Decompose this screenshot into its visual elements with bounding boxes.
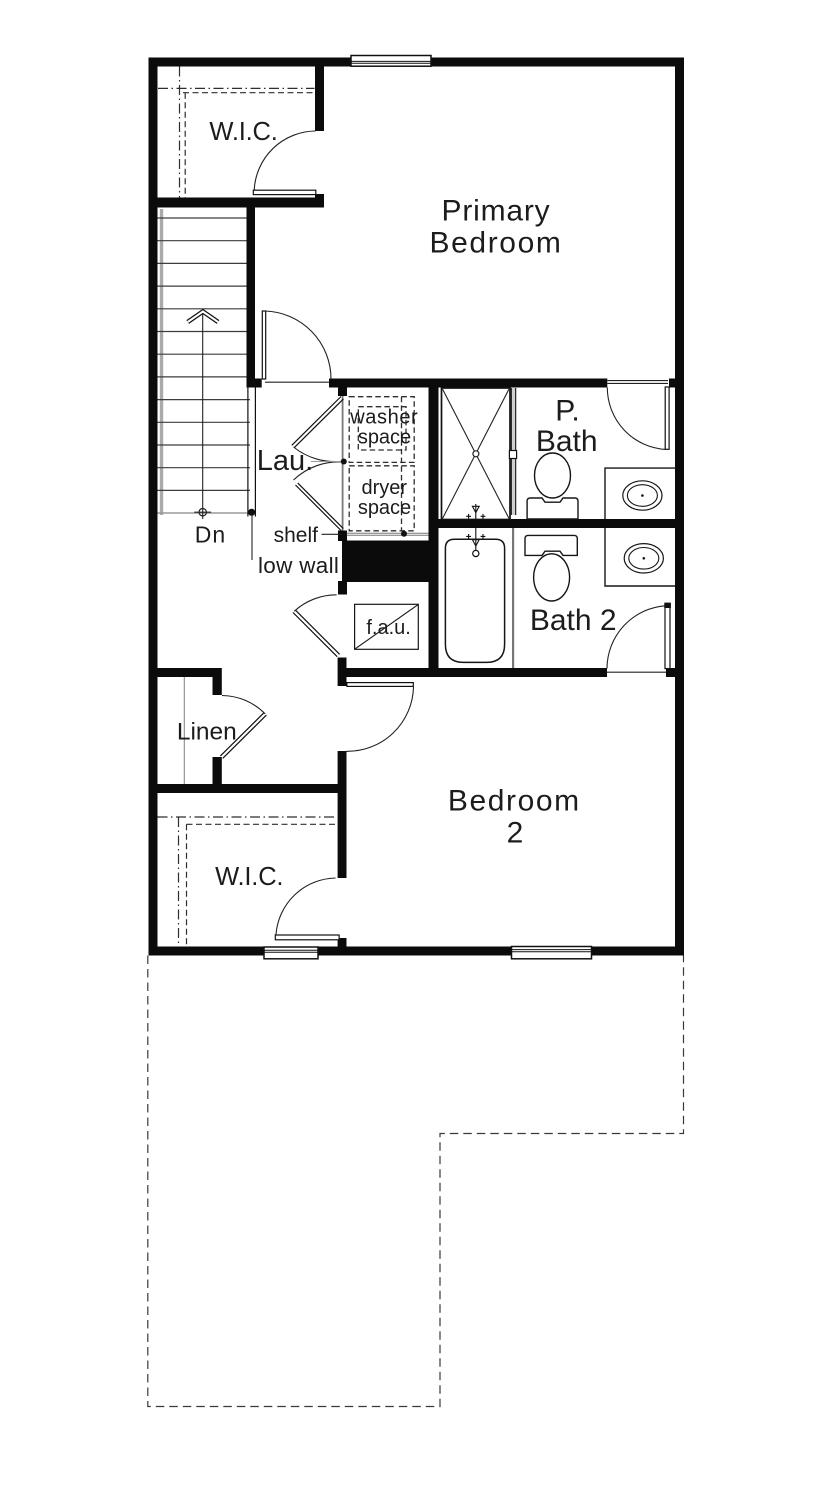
svg-text:Bath 2: Bath 2 — [530, 604, 617, 637]
svg-text:f.a.u.: f.a.u. — [366, 617, 410, 639]
svg-text:Bedroom: Bedroom — [448, 785, 581, 818]
svg-text:space: space — [358, 497, 411, 519]
svg-text:W.I.C.: W.I.C. — [215, 863, 283, 891]
svg-text:Linen: Linen — [177, 718, 237, 745]
svg-text:washer: washer — [349, 406, 418, 428]
svg-text:Bath: Bath — [536, 425, 598, 458]
svg-text:P.: P. — [555, 395, 579, 428]
svg-text:Bedroom: Bedroom — [430, 226, 563, 259]
svg-text:space: space — [358, 426, 411, 448]
svg-text:2: 2 — [507, 816, 524, 849]
svg-text:W.I.C.: W.I.C. — [209, 118, 277, 146]
svg-text:Dn: Dn — [195, 522, 226, 548]
svg-text:dryer: dryer — [362, 477, 408, 499]
svg-text:low wall: low wall — [258, 553, 339, 578]
svg-text:shelf: shelf — [274, 524, 319, 547]
svg-text:Primary: Primary — [442, 194, 551, 227]
svg-text:Lau.: Lau. — [257, 445, 313, 477]
